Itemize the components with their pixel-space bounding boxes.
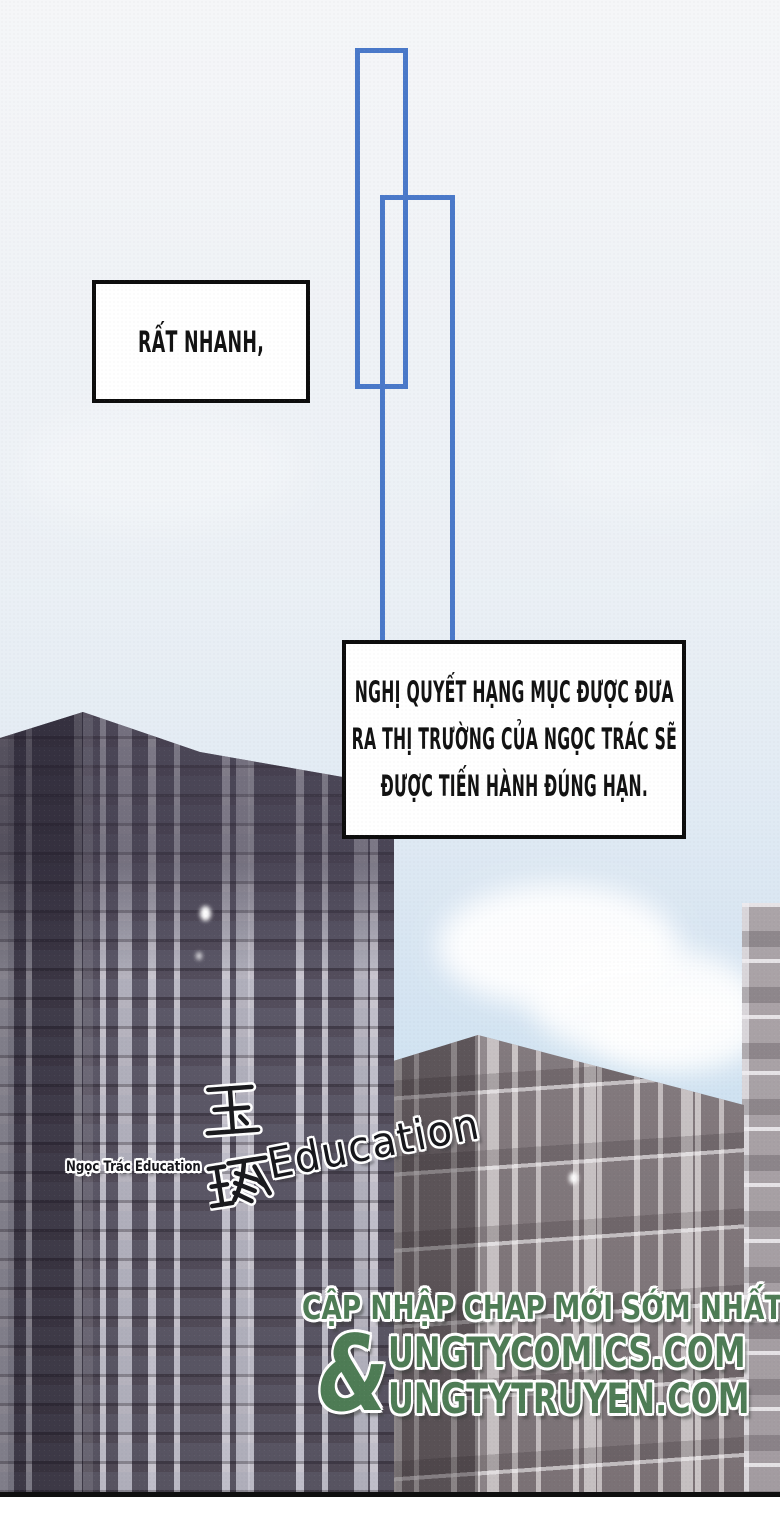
- speech-line: ĐƯỢC TIẾN HÀNH ĐÚNG HẠN.: [351, 763, 676, 810]
- cloud: [18, 408, 298, 528]
- hanzi-yu-icon: [199, 1074, 263, 1144]
- panel-bottom-border: [0, 1492, 780, 1497]
- speech-box-nghi-quyet: NGHỊ QUYẾT HẠNG MỤC ĐƯỢC ĐƯA RA THỊ TRƯỜ…: [342, 640, 686, 839]
- speech-text: RẤT NHANH,: [138, 325, 264, 359]
- watermark-url-comics: UNGTYCOMICS.COM: [388, 1332, 746, 1374]
- comic-panel: RẤT NHANH, NGHỊ QUYẾT HẠNG MỤC ĐƯỢC ĐƯA …: [0, 0, 780, 1497]
- speech-box-rat-nhanh: RẤT NHANH,: [92, 280, 310, 403]
- cloud: [540, 420, 780, 510]
- comic-page: RẤT NHANH, NGHỊ QUYẾT HẠNG MỤC ĐƯỢC ĐƯA …: [0, 0, 780, 1532]
- speech-line: NGHỊ QUYẾT HẠNG MỤC ĐƯỢC ĐƯA: [351, 669, 676, 716]
- blue-rectangle-motif-2: [380, 195, 455, 655]
- building-sign-small-label: Ngọc Trác Education: [66, 1159, 201, 1175]
- skyscraper-middle: [390, 1035, 744, 1497]
- watermark-url-truyen: UNGTYTRUYEN.COM: [388, 1378, 750, 1420]
- speech-text: NGHỊ QUYẾT HẠNG MỤC ĐƯỢC ĐƯA RA THỊ TRƯỜ…: [351, 669, 676, 810]
- speech-line: RA THỊ TRƯỜNG CỦA NGỌC TRÁC SẼ: [351, 716, 676, 763]
- window-glint: [200, 906, 211, 921]
- window-glint: [196, 952, 202, 960]
- building-sign-hanzi-column: [199, 1074, 275, 1220]
- window-glint: [569, 1172, 578, 1184]
- watermark-ampersand: &: [312, 1330, 393, 1419]
- cloud: [594, 986, 764, 1072]
